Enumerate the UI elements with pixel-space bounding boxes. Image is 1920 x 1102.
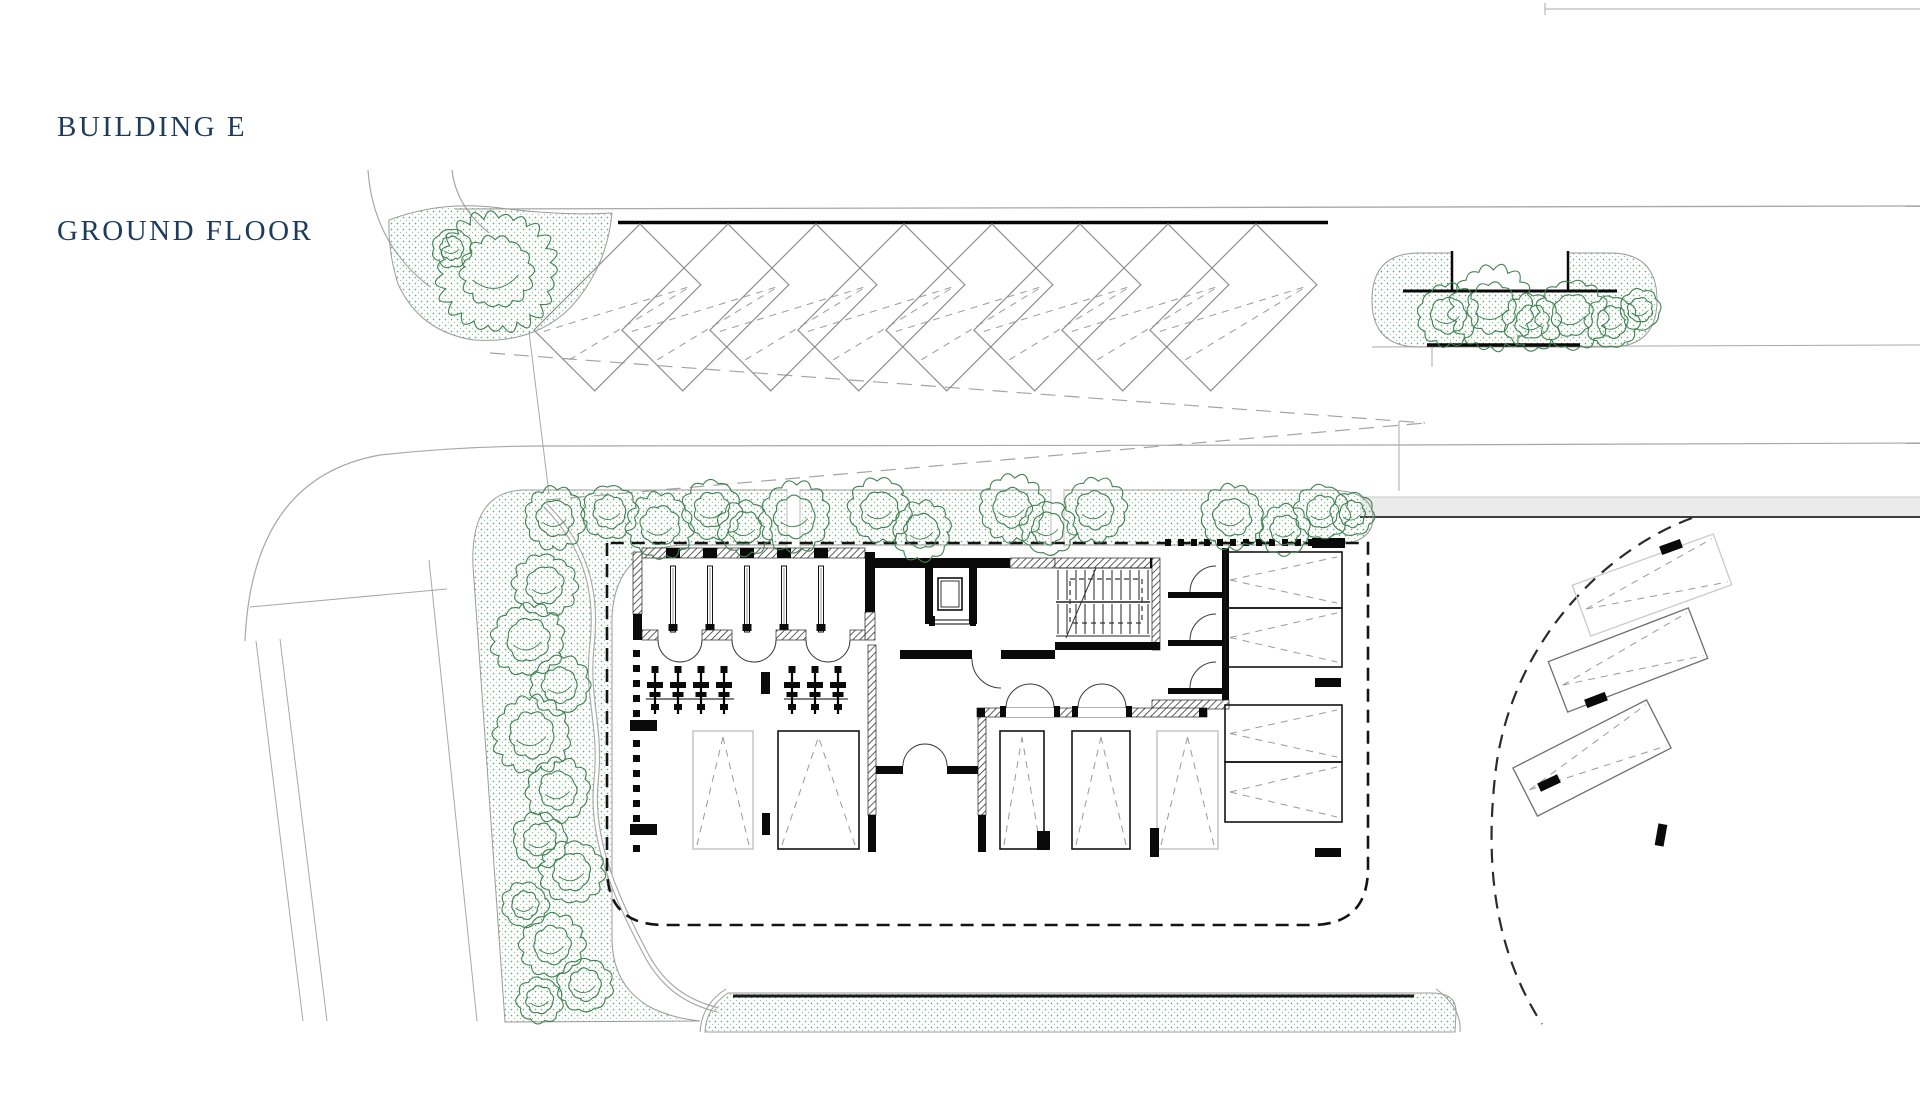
sight-lines	[490, 353, 1425, 500]
bicycle-racks	[646, 666, 848, 714]
site-plan-page: BUILDING E GROUND FLOOR	[0, 0, 1920, 1102]
southeast-parking-fan	[1492, 518, 1732, 1024]
building-e-plan	[630, 538, 1345, 852]
pavement-band	[1360, 497, 1920, 517]
landscape-areas	[389, 206, 1657, 1032]
street-parking-row	[534, 223, 1328, 391]
site-plan-drawing	[0, 0, 1920, 1102]
site-boundary	[607, 543, 1368, 925]
